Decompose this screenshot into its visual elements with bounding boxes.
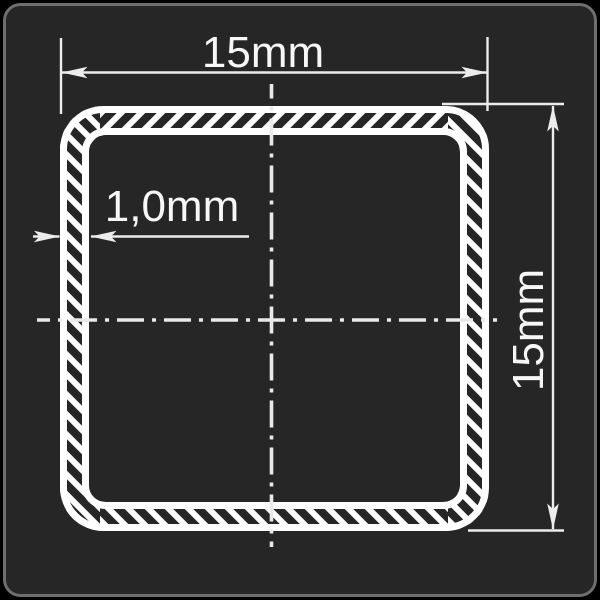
- wall-thickness-label: 1,0mm: [105, 182, 239, 231]
- height-dimension-label: 15mm: [504, 269, 553, 391]
- width-dimension-label: 15mm: [202, 28, 324, 77]
- technical-drawing: 15mm 15mm 1,0mm: [0, 0, 600, 600]
